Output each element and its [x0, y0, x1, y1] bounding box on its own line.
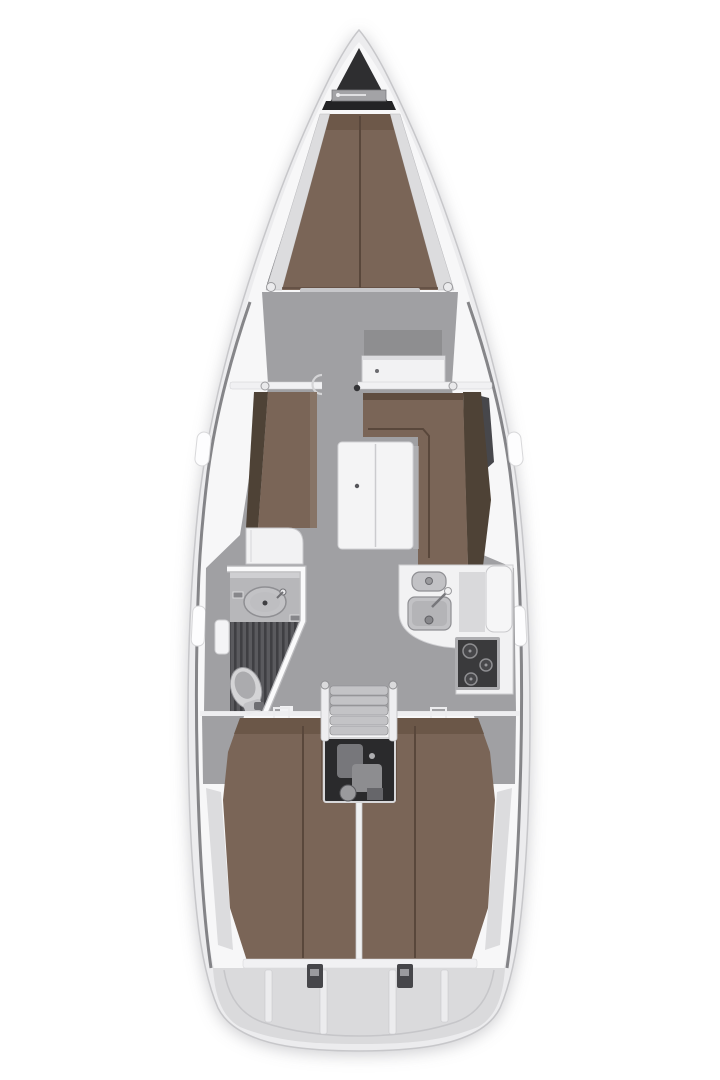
forward-cabin: [262, 292, 458, 386]
table-shadow: [413, 446, 419, 549]
transom-deck: [213, 968, 505, 1044]
aft-cabin-divider: [356, 798, 362, 963]
bow-knob-port: [267, 283, 276, 292]
step-tread-5: [330, 726, 388, 735]
bow-knob-starboard: [444, 283, 453, 292]
transom-rib-1: [265, 970, 272, 1022]
door-hinge: [354, 385, 360, 391]
step-tread-2: [330, 696, 388, 705]
galley-faucet: [445, 588, 452, 595]
forward-desk-shadow: [364, 330, 442, 358]
deck-plan-canvas: [0, 0, 720, 1080]
step-tread-4: [330, 716, 388, 725]
bulkhead-knob-port: [261, 382, 269, 390]
port-hull-window-aft: [191, 606, 206, 647]
vanity-handle-left: [233, 592, 243, 598]
v-berth-cabin: [266, 114, 454, 295]
forward-desk-edge: [362, 356, 445, 360]
engine-compartment: [324, 738, 395, 802]
lazarette-latch-port-detail: [310, 969, 319, 976]
steps-rail-starboard: [389, 683, 397, 741]
forward-desk-knob: [375, 369, 379, 373]
steps-knob-starboard: [389, 681, 397, 689]
bulkhead-knob-starboard: [449, 382, 457, 390]
stove-burner-1-cap: [469, 650, 472, 653]
table-hinge-dot: [355, 484, 359, 488]
starboard-aft-berth-head-shade: [396, 718, 484, 734]
galley-sink-large-drain: [425, 616, 433, 624]
forward-desk: [362, 356, 445, 386]
engine-cap: [369, 753, 375, 759]
yacht-floor-plan: [0, 0, 720, 1080]
stove-burner-3-cap: [470, 678, 473, 681]
step-tread-3: [330, 706, 388, 715]
stove-burner-2-cap: [485, 664, 488, 667]
vanity-handle-right: [290, 615, 301, 621]
step-tread-1: [330, 686, 388, 695]
toilet-pump: [254, 702, 264, 710]
bulkhead-door-gap: [322, 380, 358, 391]
port-settee: [246, 392, 317, 528]
lazarette-latch-starboard-detail: [400, 969, 409, 976]
vanity-drain: [263, 601, 268, 606]
galley-sink-small-drain: [426, 578, 433, 585]
saloon-table: [338, 442, 419, 549]
vanity-counter-edge: [230, 572, 302, 578]
anchor-chain-end: [336, 93, 340, 97]
transom-rib-3: [389, 970, 396, 1034]
galley-hull-locker: [486, 566, 512, 632]
transom-lazarette: [213, 959, 505, 1044]
chart-seat-top: [246, 528, 303, 564]
steps-rail-port: [321, 683, 329, 741]
engine-block-2: [352, 764, 382, 792]
chart-seat: [246, 528, 303, 564]
berth-foot-board: [243, 959, 477, 968]
port-settee-edge: [310, 392, 317, 528]
companionway-steps: [321, 681, 397, 741]
heads-hull-locker: [215, 620, 229, 654]
engine-mount: [367, 788, 383, 800]
galley-worktop-shade: [459, 572, 485, 632]
anchor-locker-band: [322, 101, 396, 110]
port-settee-cushion: [258, 392, 317, 528]
transom-rib-4: [441, 970, 448, 1022]
engine-pulley: [340, 785, 356, 801]
dinette-head-shade: [363, 393, 463, 400]
port-aft-berth-head-shade: [234, 718, 322, 734]
steps-knob-port: [321, 681, 329, 689]
